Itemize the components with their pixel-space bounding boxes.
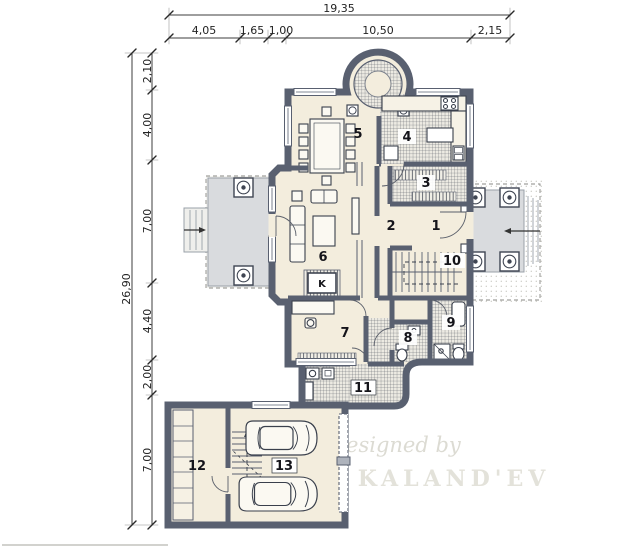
- terrace-left: [184, 176, 276, 288]
- room-label-2: 2: [386, 219, 395, 234]
- terrace-steps: [184, 208, 208, 252]
- room-label-10: 10: [443, 254, 461, 269]
- garage-top-window: [252, 402, 290, 409]
- terrace-door-opening: [269, 214, 276, 237]
- dim-left-seg-0: 2,10: [141, 59, 154, 84]
- terrace-column-icon: [234, 266, 253, 285]
- porch-right: [466, 180, 544, 304]
- main-entrance-opening: [467, 212, 474, 239]
- window-icon: [294, 89, 336, 96]
- room-label-7: 7: [340, 326, 349, 341]
- room-label-6: 6: [318, 250, 327, 265]
- room-label-12: 12: [188, 459, 206, 474]
- dim-left-total: 26,90: [120, 273, 133, 305]
- dimensions-left: 26,90 2,10 4,00 7,00 4,40 2,00 7,00: [120, 49, 158, 529]
- terrace-column-icon: [234, 178, 253, 197]
- room-label-13: 13: [275, 459, 293, 474]
- window-icon: [285, 106, 292, 146]
- room-label-5: 5: [353, 127, 362, 142]
- dim-top-total: 19,35: [323, 2, 355, 15]
- dim-left-seg-1: 4,00: [141, 113, 154, 138]
- window-icon: [416, 89, 460, 96]
- car-icon: [239, 477, 317, 511]
- tower-column-icon: [347, 105, 358, 116]
- dim-left-seg-4: 2,00: [141, 365, 154, 390]
- window-icon: [269, 236, 276, 262]
- garage-door-opening: [339, 414, 348, 460]
- dim-left-seg-5: 7,00: [141, 448, 154, 473]
- window-icon: [269, 186, 276, 212]
- house: K: [269, 52, 474, 406]
- floor-plan-svg: Designed by TK KALAND'EV 19,35 4,05 1,65…: [0, 0, 638, 556]
- car-icon: [246, 421, 317, 455]
- dim-left-seg-3: 4,40: [141, 309, 154, 334]
- dim-top-seg-4: 2,15: [478, 24, 503, 37]
- dim-left-seg-2: 7,00: [141, 209, 154, 234]
- dim-top-seg-0: 4,05: [192, 24, 217, 37]
- toilet-icon: [397, 349, 407, 361]
- room-label-8: 8: [403, 331, 412, 346]
- floor-plan-canvas: Designed by TK KALAND'EV 19,35 4,05 1,65…: [0, 0, 638, 556]
- dim-top-seg-3: 10,50: [362, 24, 394, 37]
- room-label-9: 9: [446, 316, 455, 331]
- chimney-label: K: [318, 279, 327, 290]
- room-label-1: 1: [431, 219, 440, 234]
- dimensions-top: 19,35 4,05 1,65 1,00 10,50 2,15: [165, 2, 514, 44]
- dim-top-seg-2: 1,00: [269, 24, 294, 37]
- window-icon: [467, 104, 474, 148]
- fridge-icon: [384, 146, 398, 160]
- dim-top-seg-1: 1,65: [240, 24, 265, 37]
- garage-door-opening: [339, 462, 348, 512]
- room-label-4: 4: [402, 130, 411, 145]
- porch-column-icon: [500, 252, 519, 271]
- washing-machine-icon: [306, 368, 319, 379]
- chimney-shaft: K: [304, 270, 340, 296]
- window-icon: [296, 359, 356, 366]
- window-icon: [467, 306, 474, 352]
- porch-column-icon: [500, 188, 519, 207]
- room-label-3: 3: [421, 176, 430, 191]
- room-label-11: 11: [354, 381, 372, 396]
